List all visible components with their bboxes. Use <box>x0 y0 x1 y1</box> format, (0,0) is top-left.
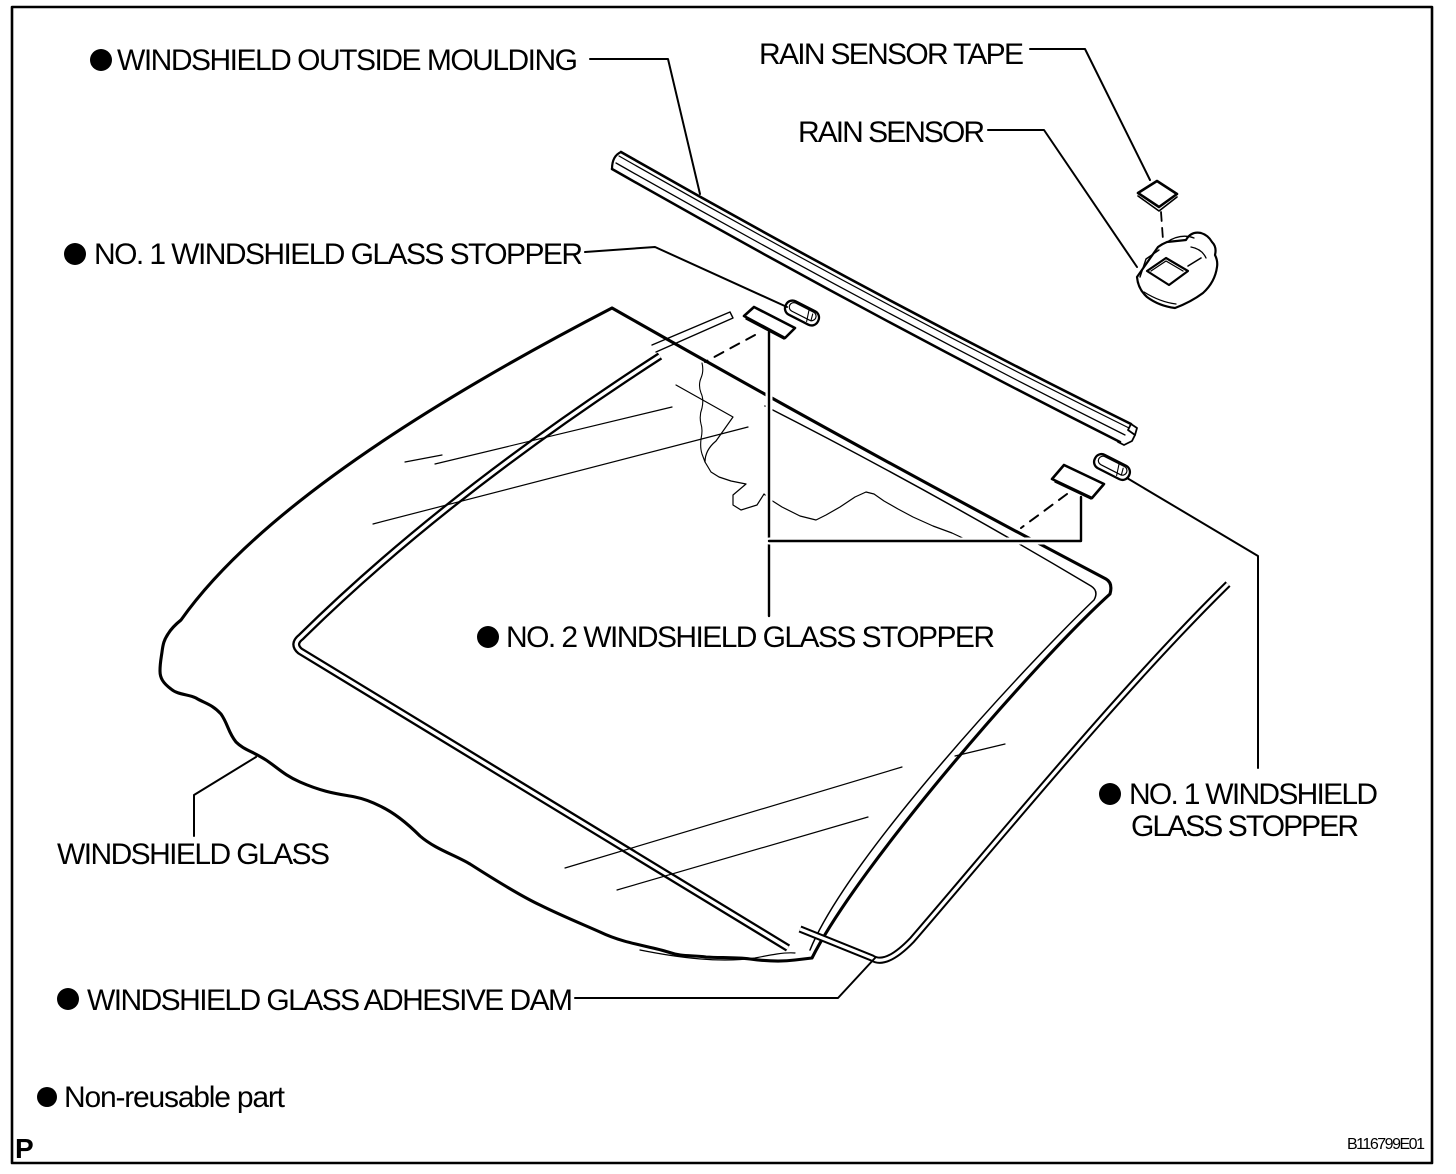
svg-text:P: P <box>15 1133 34 1164</box>
svg-text:RAIN SENSOR: RAIN SENSOR <box>798 116 985 149</box>
svg-text:Non-reusable part: Non-reusable part <box>64 1081 286 1114</box>
svg-text:WINDSHIELD GLASS: WINDSHIELD GLASS <box>57 838 330 871</box>
svg-text:WINDSHIELD OUTSIDE MOULDING: WINDSHIELD OUTSIDE MOULDING <box>117 44 578 77</box>
svg-text:RAIN SENSOR TAPE: RAIN SENSOR TAPE <box>759 38 1024 71</box>
svg-text:NO. 2 WINDSHIELD GLASS STOPPER: NO. 2 WINDSHIELD GLASS STOPPER <box>506 621 995 654</box>
svg-text:NO. 1 WINDSHIELD: NO. 1 WINDSHIELD <box>1129 778 1378 811</box>
svg-text:WINDSHIELD GLASS ADHESIVE DAM: WINDSHIELD GLASS ADHESIVE DAM <box>87 984 573 1017</box>
svg-text:NO. 1 WINDSHIELD GLASS STOPPER: NO. 1 WINDSHIELD GLASS STOPPER <box>94 238 583 271</box>
svg-text:B116799E01: B116799E01 <box>1347 1136 1425 1153</box>
svg-text:GLASS STOPPER: GLASS STOPPER <box>1131 810 1359 843</box>
